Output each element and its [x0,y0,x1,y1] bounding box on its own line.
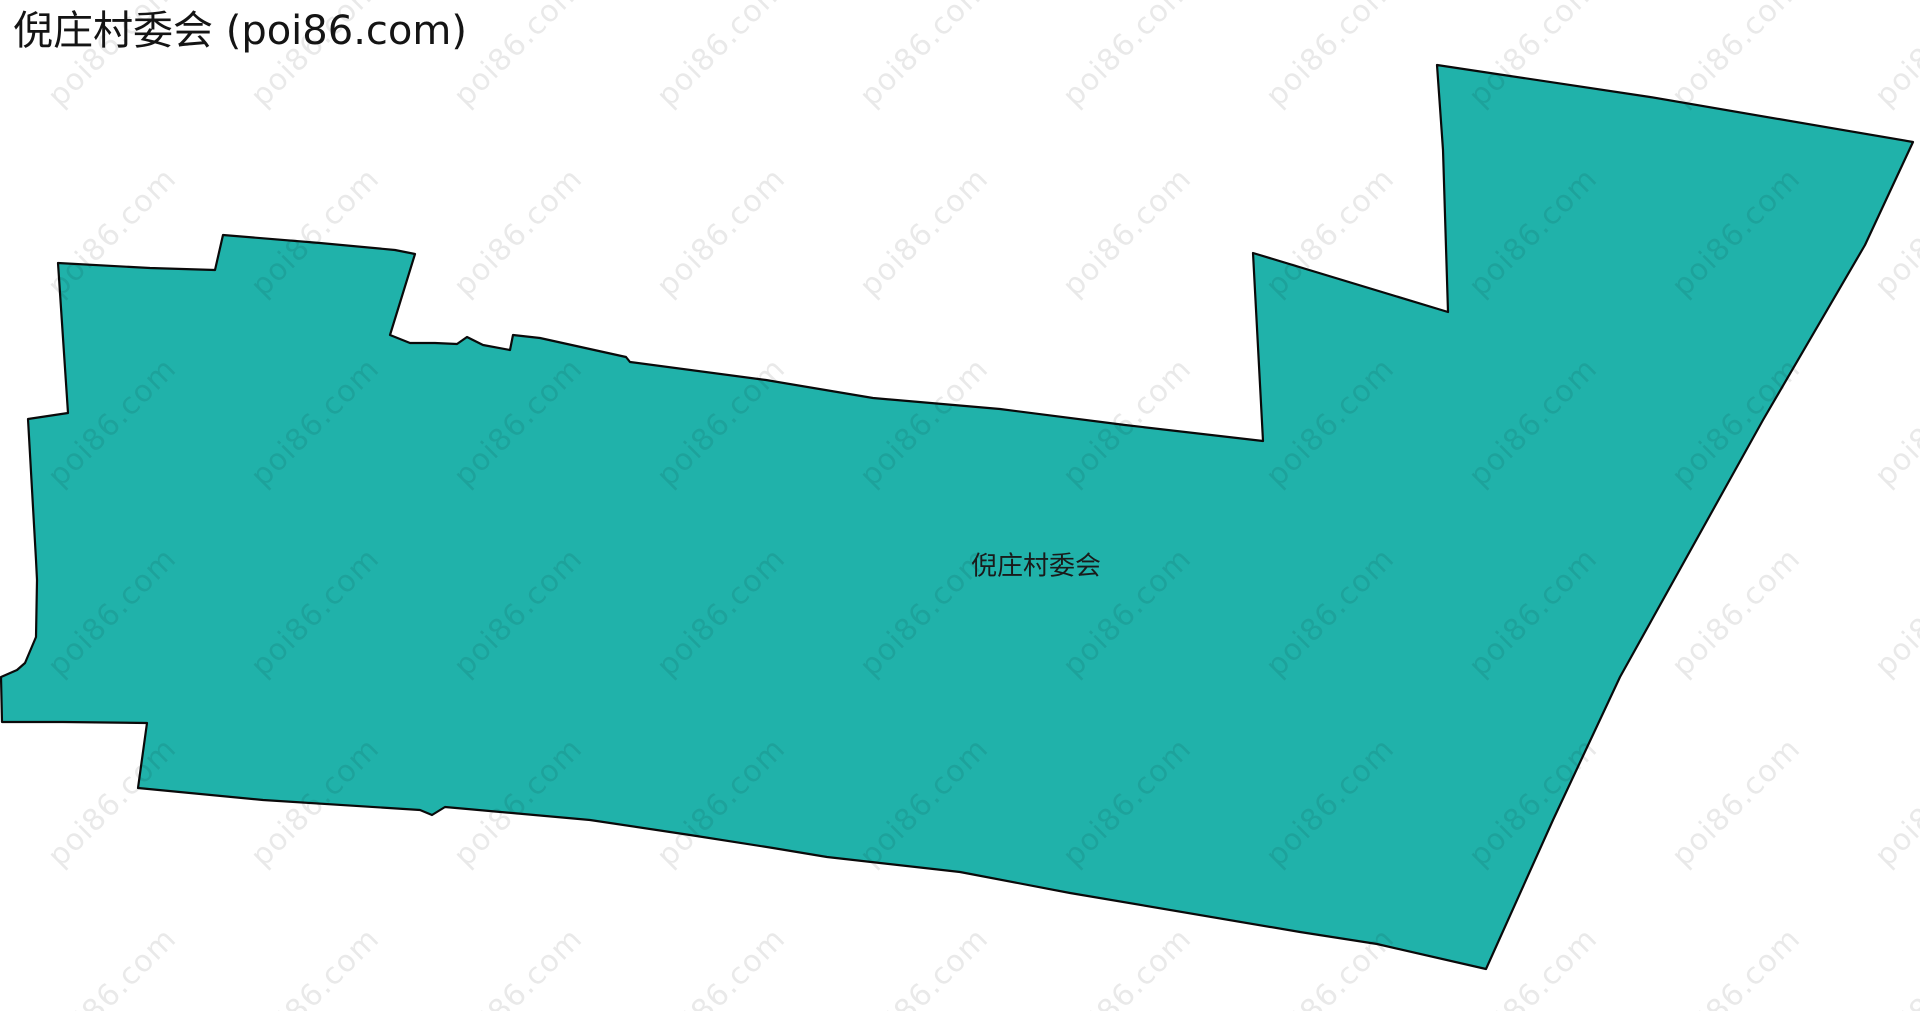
page-title: 倪庄村委会 (poi86.com) [13,8,467,54]
region-polygon-nizhuang [1,65,1913,969]
map-page: poi86.compoi86.compoi86.compoi86.compoi8… [0,0,1920,1011]
map-canvas [0,0,1920,1011]
region-label: 倪庄村委会 [971,546,1101,583]
